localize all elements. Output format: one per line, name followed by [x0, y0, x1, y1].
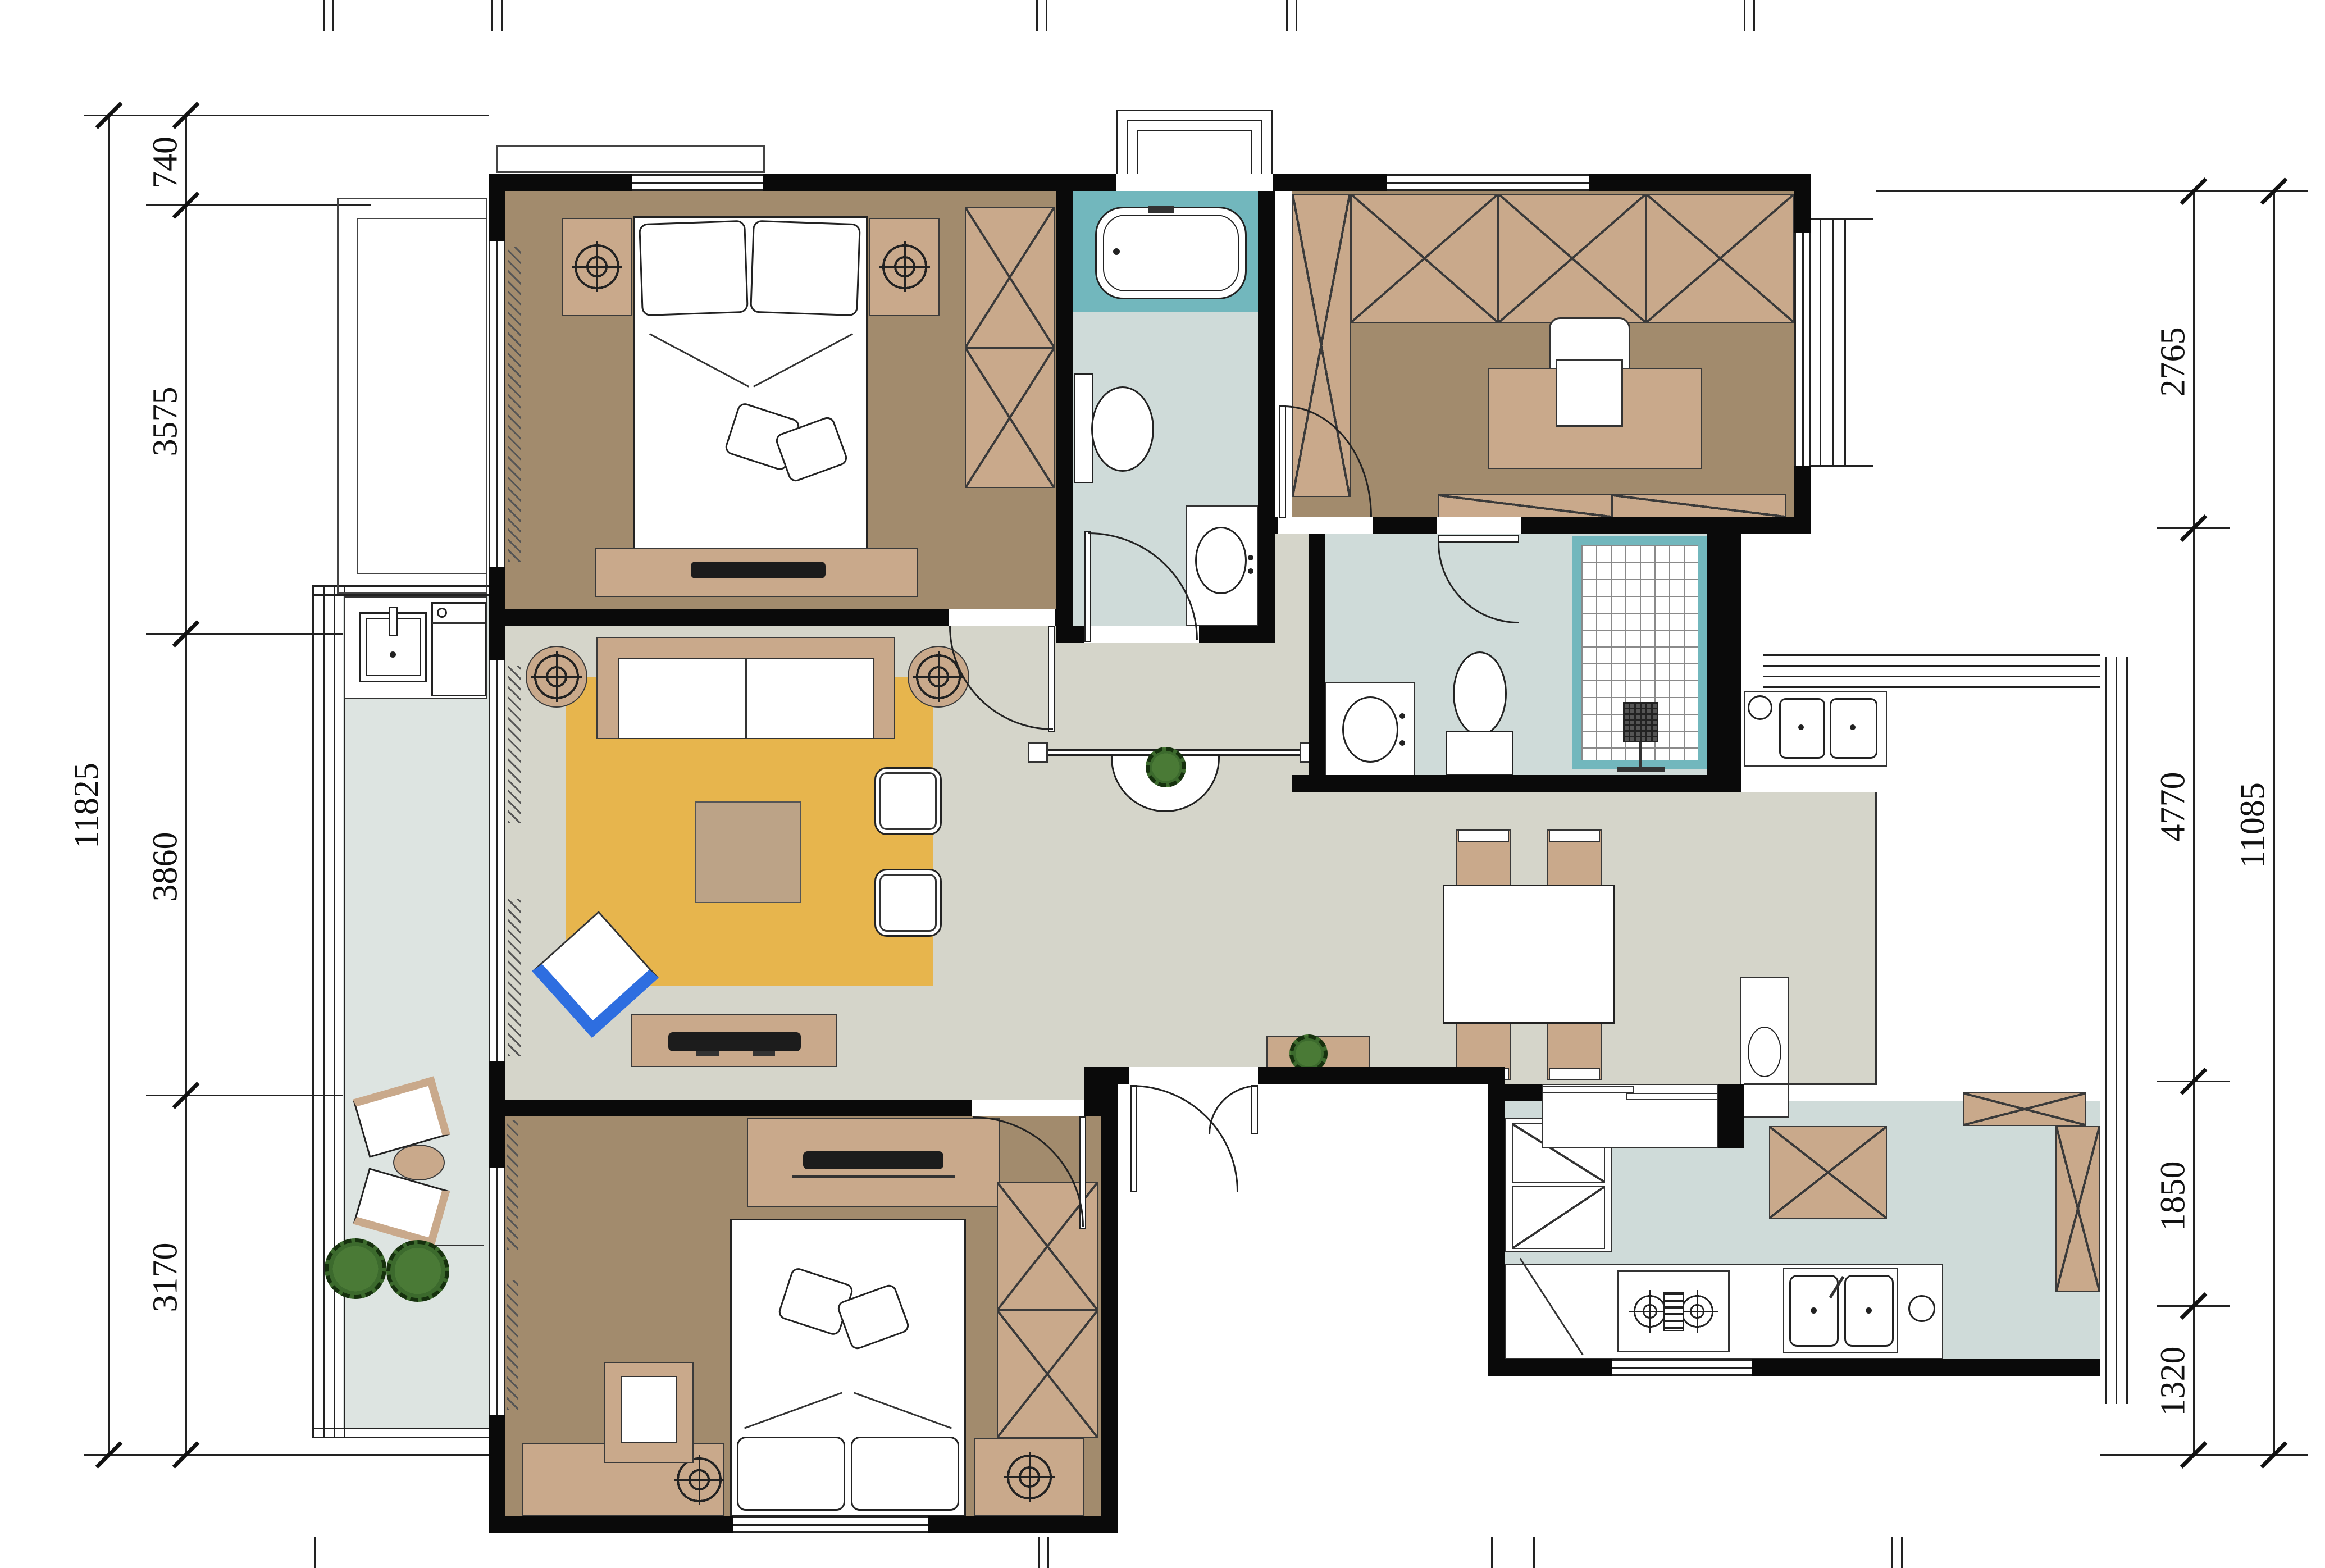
dim-label-11085: 11085 — [2233, 758, 2273, 893]
bathtub-inner — [1103, 215, 1239, 291]
door-gap — [972, 1100, 1084, 1116]
faucet-dot — [1248, 555, 1253, 560]
window — [1612, 1359, 1752, 1376]
shoe-cabinet — [1769, 1126, 1887, 1219]
wall — [1488, 1084, 1505, 1376]
bathtub-drain — [1113, 248, 1120, 255]
dim-label-4770: 4770 — [2154, 740, 2194, 874]
wall — [1309, 534, 1325, 792]
dimension-line-left-outer — [108, 115, 110, 1455]
faucet-dot — [1399, 713, 1405, 719]
glass-partition-line — [1744, 1083, 1876, 1085]
pillow — [639, 220, 749, 317]
wall — [1707, 534, 1741, 792]
grid-tick — [1296, 0, 1297, 31]
washer-knob — [437, 608, 447, 618]
curtain-icon — [508, 666, 521, 823]
dining-chair-back — [1458, 829, 1509, 842]
dim-label-11825: 11825 — [67, 739, 107, 873]
tv-shelf — [792, 1175, 955, 1178]
window — [632, 174, 763, 191]
ottoman — [874, 869, 942, 937]
dimension-line-right-outer — [2273, 191, 2275, 1455]
faucet-dot — [1248, 568, 1253, 574]
glass-partition-line — [1875, 792, 1877, 1085]
partition-post — [1028, 742, 1048, 763]
pillow — [737, 1437, 845, 1511]
extension-line — [84, 115, 489, 116]
ottoman — [874, 767, 942, 835]
drain-dot — [1811, 1307, 1817, 1314]
wall — [1488, 1359, 2100, 1376]
wardrobe — [997, 1310, 1098, 1438]
toilet-bowl — [1091, 386, 1154, 472]
dim-label-3860: 3860 — [146, 800, 186, 935]
wardrobe — [965, 207, 1055, 348]
extension-line — [1876, 190, 2308, 192]
coffee-table — [695, 801, 801, 903]
balcony-railing-left — [312, 585, 345, 1437]
drain-dot — [1850, 724, 1856, 730]
terrace-railing-top — [1763, 654, 2100, 688]
grid-tick — [501, 0, 503, 31]
balcony-sliding-window — [489, 660, 505, 1061]
pillow — [851, 1437, 959, 1511]
sink-oval — [1195, 527, 1247, 594]
window — [1387, 174, 1589, 191]
lamp-icon — [572, 241, 622, 292]
drain-dot — [1798, 724, 1804, 730]
grid-tick — [1036, 0, 1038, 31]
curtain-icon — [507, 1120, 518, 1250]
sink-oval — [1342, 696, 1398, 763]
desk-chair-seat — [1556, 359, 1623, 427]
grid-tick — [1286, 0, 1288, 31]
wall — [1258, 1067, 1505, 1084]
window — [733, 1516, 928, 1533]
wall — [489, 626, 505, 660]
dim-label-1320: 1320 — [2154, 1314, 2194, 1449]
washer-panel-line — [432, 622, 485, 624]
balcony-railing-cap — [312, 1428, 489, 1429]
window — [489, 1168, 505, 1415]
study-low-cabinet — [1612, 494, 1786, 518]
sofa-seat — [746, 658, 874, 739]
study-wardrobe — [1646, 194, 1794, 323]
floor-plan-canvas: 740 3575 3860 3170 11825 2765 4770 1850 … — [0, 0, 2325, 1568]
laundry-faucet — [389, 607, 398, 636]
toilet-tank — [1074, 373, 1093, 483]
study-balcony-rail — [1820, 219, 1821, 466]
grid-tick — [1744, 0, 1745, 31]
study-wardrobe — [1351, 194, 1498, 323]
wall — [1056, 174, 1073, 643]
grid-tick — [323, 0, 325, 31]
door-gap — [949, 609, 1055, 626]
top-ledge — [496, 145, 765, 173]
grid-tick — [1038, 1537, 1040, 1568]
bay-window-frame — [1137, 130, 1252, 178]
washer-panel-line — [434, 1245, 484, 1246]
toilet-bowl — [1453, 651, 1507, 736]
wall — [1101, 1067, 1118, 1533]
lamp-icon — [531, 651, 582, 702]
balcony-table — [393, 1145, 445, 1180]
dim-label-2765: 2765 — [2154, 295, 2194, 430]
wall — [1118, 1067, 1129, 1084]
tv-icon — [803, 1151, 943, 1169]
curtain-icon — [508, 247, 521, 562]
bay-ledge-inner — [357, 218, 487, 574]
dining-chair-back — [1549, 1068, 1600, 1080]
dim-label-1850: 1850 — [2154, 1129, 2194, 1264]
faucet-dot — [1399, 740, 1405, 746]
window — [489, 241, 505, 567]
sofa-seat — [618, 658, 746, 739]
grid-tick — [491, 0, 493, 31]
window — [1794, 233, 1811, 466]
small-basin — [1748, 695, 1772, 720]
tv-foot — [753, 1051, 775, 1056]
drain-dot — [390, 651, 396, 658]
oven — [1512, 1186, 1605, 1249]
grid-tick — [332, 0, 334, 31]
service-cabinet — [2055, 1126, 2100, 1292]
stove-grill — [1663, 1292, 1684, 1331]
drain-dot — [1866, 1307, 1872, 1314]
entry-door-arc — [1209, 1085, 1258, 1134]
grid-tick — [1047, 1537, 1049, 1568]
shower-stem — [1639, 742, 1642, 768]
grid-tick — [1901, 1537, 1903, 1568]
tv-icon — [691, 562, 826, 578]
pillow — [750, 220, 861, 317]
extension-line — [84, 1454, 489, 1456]
lamp-icon — [1004, 1452, 1055, 1502]
bathtub-faucet — [1148, 206, 1174, 213]
wall — [1258, 174, 1275, 643]
study-balcony-rail — [1832, 219, 1834, 466]
grid-tick — [1046, 0, 1047, 31]
balcony-railing-cap — [312, 1437, 489, 1438]
grid-tick — [314, 1537, 316, 1568]
dining-table — [1443, 885, 1615, 1024]
small-desk-chair — [621, 1376, 677, 1443]
small-basin — [1908, 1295, 1935, 1322]
balcony-railing-cap — [312, 594, 489, 596]
study-wardrobe — [1498, 194, 1646, 323]
shower-head-icon — [1623, 702, 1658, 742]
tv-foot — [696, 1051, 719, 1056]
curtain-icon — [508, 899, 521, 1056]
grid-tick — [1891, 1537, 1893, 1568]
wall — [1292, 775, 1741, 792]
toilet-tank — [1446, 731, 1513, 775]
grid-tick — [1753, 0, 1755, 31]
entry-door-gap — [1129, 1067, 1258, 1084]
lamp-icon — [879, 241, 930, 292]
wall — [489, 174, 1073, 191]
study-balcony-rail — [1844, 219, 1846, 466]
tv-icon — [668, 1032, 801, 1051]
balcony-left-floor — [343, 595, 489, 1428]
door-leaf — [1438, 535, 1519, 543]
dim-label-3575: 3575 — [146, 354, 186, 489]
shower-base — [1617, 767, 1665, 772]
plant-icon — [325, 1238, 386, 1299]
hall-cabinet-basin — [1748, 1027, 1781, 1077]
door-gap — [1437, 517, 1521, 534]
service-cabinet — [1963, 1092, 2086, 1126]
wall — [1718, 1084, 1744, 1148]
grid-tick — [1491, 1537, 1493, 1568]
terrace-railing-right — [2105, 657, 2137, 1404]
sliding-door-panel — [1542, 1086, 1634, 1093]
grid-tick — [1533, 1537, 1535, 1568]
study-low-cabinet — [1438, 494, 1612, 518]
door-gap — [1278, 517, 1373, 534]
plant-icon — [386, 1240, 449, 1302]
wall-opening — [1116, 174, 1273, 191]
dim-label-740: 740 — [146, 95, 186, 230]
dining-chair-back — [1549, 829, 1600, 842]
dim-label-3170: 3170 — [146, 1210, 186, 1345]
wardrobe — [965, 348, 1055, 488]
sliding-door-panel — [1626, 1093, 1718, 1100]
plant-icon — [1146, 747, 1186, 787]
curtain-icon — [507, 1280, 518, 1410]
